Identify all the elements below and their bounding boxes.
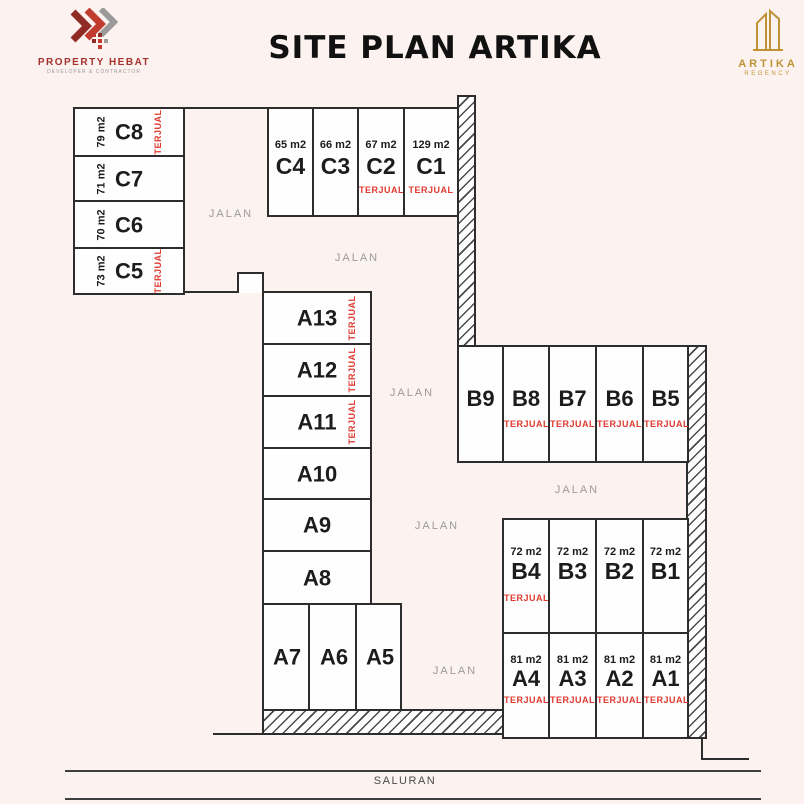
lot-B6: B6 TERJUAL bbox=[595, 345, 644, 463]
lot-C4: 65 m2 C4 bbox=[267, 107, 314, 217]
lot-sold-label: TERJUAL bbox=[504, 594, 548, 604]
road-label-jalan-1: JALAN bbox=[209, 208, 253, 220]
lot-A10: A10 bbox=[262, 447, 372, 500]
lot-name: B5 bbox=[644, 387, 687, 410]
lot-name: B6 bbox=[597, 387, 642, 410]
lot-sold-label: TERJUAL bbox=[348, 399, 358, 444]
lot-name: C2 bbox=[359, 154, 403, 178]
lot-size: 73 m2 bbox=[96, 255, 109, 286]
lot-name: C6 bbox=[115, 213, 143, 236]
lot-size: 72 m2 bbox=[504, 546, 548, 559]
road-label-jalan-2: JALAN bbox=[335, 252, 379, 264]
lot-sold-label: TERJUAL bbox=[644, 420, 687, 430]
double-chevron-pixel-icon bbox=[65, 37, 123, 54]
lot-B7: B7 TERJUAL bbox=[548, 345, 597, 463]
lot-size: 81 m2 bbox=[550, 654, 595, 667]
lot-A2: 81 m2 A2 TERJUAL bbox=[595, 632, 644, 739]
lot-sold-label: TERJUAL bbox=[597, 696, 642, 706]
boundary-notch bbox=[237, 272, 264, 293]
site-plan-poster: PROPERTY HEBAT DEVELOPER & CONTRACTOR SI… bbox=[0, 0, 804, 804]
gold-towers-icon bbox=[749, 39, 787, 56]
brand-right-subname: REGENCY bbox=[737, 71, 799, 77]
lot-name: C7 bbox=[115, 167, 143, 190]
lot-size: 72 m2 bbox=[550, 546, 595, 559]
road-label-jalan-4: JALAN bbox=[555, 484, 599, 496]
lot-size: 81 m2 bbox=[644, 654, 687, 667]
lot-sold-label: TERJUAL bbox=[644, 696, 687, 706]
lot-name: A10 bbox=[297, 462, 337, 485]
hatch-strip-top bbox=[457, 95, 476, 347]
lot-C2: 67 m2 C2 TERJUAL bbox=[357, 107, 405, 217]
lot-name: B2 bbox=[597, 559, 642, 583]
lot-A13: A13 TERJUAL bbox=[262, 291, 372, 345]
lot-A9: A9 bbox=[262, 498, 372, 552]
bottom-right-horizontal-line bbox=[701, 758, 749, 760]
lot-sold-label: TERJUAL bbox=[504, 420, 548, 430]
page-title: SITE PLAN ARTIKA bbox=[268, 30, 601, 66]
lot-C7: 71 m2 C7 bbox=[73, 155, 185, 202]
lot-size: 129 m2 bbox=[405, 139, 457, 152]
lot-sold-label: TERJUAL bbox=[154, 109, 164, 154]
lot-name: A5 bbox=[366, 645, 394, 668]
lot-size: 66 m2 bbox=[314, 139, 357, 152]
bottom-stub-line bbox=[213, 733, 264, 735]
lot-sold-label bbox=[597, 594, 642, 604]
lot-size: 65 m2 bbox=[269, 139, 312, 152]
lot-B5: B5 TERJUAL bbox=[642, 345, 689, 463]
saluran-bottom-line bbox=[65, 798, 761, 800]
lot-name: A3 bbox=[550, 667, 595, 690]
road-label-jalan-6: JALAN bbox=[433, 665, 477, 677]
lot-sold-label bbox=[459, 420, 502, 430]
lot-size: 71 m2 bbox=[96, 163, 109, 194]
lot-size: 72 m2 bbox=[644, 546, 687, 559]
lot-B4: 72 m2 B4 TERJUAL bbox=[502, 518, 550, 634]
lot-B2: 72 m2 B2 bbox=[595, 518, 644, 634]
lot-C6: 70 m2 C6 bbox=[73, 200, 185, 249]
lot-size: 79 m2 bbox=[96, 116, 109, 147]
lot-name: A7 bbox=[273, 645, 301, 668]
road-label-jalan-5: JALAN bbox=[415, 520, 459, 532]
lot-name: C1 bbox=[405, 154, 457, 178]
lot-name: C5 bbox=[115, 259, 143, 282]
lot-name: A11 bbox=[297, 410, 336, 433]
lot-sold-label bbox=[644, 594, 687, 604]
lot-sold-label: TERJUAL bbox=[348, 295, 358, 340]
lot-name: B7 bbox=[550, 387, 595, 410]
lot-name: C4 bbox=[269, 154, 312, 178]
lot-name: C3 bbox=[314, 154, 357, 178]
lot-B9: B9 bbox=[457, 345, 504, 463]
lot-A11: A11 TERJUAL bbox=[262, 395, 372, 449]
brand-right-name: ARTIKA bbox=[737, 58, 799, 70]
brand-left-tagline: DEVELOPER & CONTRACTOR bbox=[23, 69, 165, 75]
lot-name: B8 bbox=[504, 387, 548, 410]
lot-A1: 81 m2 A1 TERJUAL bbox=[642, 632, 689, 739]
lot-A12: A12 TERJUAL bbox=[262, 343, 372, 397]
lot-A5: A5 bbox=[355, 603, 402, 711]
lot-sold-label: TERJUAL bbox=[550, 420, 595, 430]
lot-sold-label: TERJUAL bbox=[504, 696, 548, 706]
lot-name: A13 bbox=[297, 306, 337, 329]
hatch-strip-bottom bbox=[262, 709, 505, 735]
lot-name: A1 bbox=[644, 667, 687, 690]
lot-sold-label bbox=[269, 186, 312, 196]
saluran-top-line bbox=[65, 770, 761, 772]
lot-name: A12 bbox=[297, 358, 337, 381]
channel-label: SALURAN bbox=[374, 775, 436, 787]
brand-left: PROPERTY HEBAT DEVELOPER & CONTRACTOR bbox=[23, 8, 165, 75]
lot-sold-label bbox=[314, 186, 357, 196]
lot-name: B1 bbox=[644, 559, 687, 583]
lot-name: A2 bbox=[597, 667, 642, 690]
lot-B8: B8 TERJUAL bbox=[502, 345, 550, 463]
lot-A7: A7 bbox=[262, 603, 310, 711]
lot-size: 67 m2 bbox=[359, 139, 403, 152]
lot-A8: A8 bbox=[262, 550, 372, 605]
lot-name: B4 bbox=[504, 559, 548, 583]
lot-name: A8 bbox=[303, 566, 331, 589]
lot-C1: 129 m2 C1 TERJUAL bbox=[403, 107, 459, 217]
lot-name: C8 bbox=[115, 120, 143, 143]
bottom-right-vertical-line bbox=[701, 737, 703, 760]
lot-name: A9 bbox=[303, 513, 331, 536]
lot-sold-label: TERJUAL bbox=[359, 186, 403, 196]
lot-sold-label: TERJUAL bbox=[348, 347, 358, 392]
lot-sold-label: TERJUAL bbox=[597, 420, 642, 430]
lot-name: A4 bbox=[504, 667, 548, 690]
road-label-jalan-3: JALAN bbox=[390, 387, 434, 399]
brand-right: ARTIKA REGENCY bbox=[737, 4, 799, 77]
lot-B3: 72 m2 B3 bbox=[548, 518, 597, 634]
brand-left-name: PROPERTY HEBAT bbox=[23, 57, 165, 68]
lot-C8: 79 m2 C8 TERJUAL bbox=[73, 107, 185, 157]
lot-C5: 73 m2 C5 TERJUAL bbox=[73, 247, 185, 295]
lot-name: B3 bbox=[550, 559, 595, 583]
hatch-strip-right bbox=[686, 345, 707, 739]
lot-size: 72 m2 bbox=[597, 546, 642, 559]
lot-A6: A6 bbox=[308, 603, 357, 711]
lot-A3: 81 m2 A3 TERJUAL bbox=[548, 632, 597, 739]
lot-size: 81 m2 bbox=[504, 654, 548, 667]
lot-sold-label: TERJUAL bbox=[154, 248, 164, 293]
lot-A4: 81 m2 A4 TERJUAL bbox=[502, 632, 550, 739]
lot-name: B9 bbox=[459, 387, 502, 410]
lot-sold-label: TERJUAL bbox=[405, 186, 457, 196]
lot-sold-label: TERJUAL bbox=[550, 696, 595, 706]
lot-size: 81 m2 bbox=[597, 654, 642, 667]
lot-size: 70 m2 bbox=[96, 209, 109, 240]
lot-B1: 72 m2 B1 bbox=[642, 518, 689, 634]
lot-name: A6 bbox=[320, 645, 348, 668]
lot-sold-label bbox=[550, 594, 595, 604]
lot-C3: 66 m2 C3 bbox=[312, 107, 359, 217]
